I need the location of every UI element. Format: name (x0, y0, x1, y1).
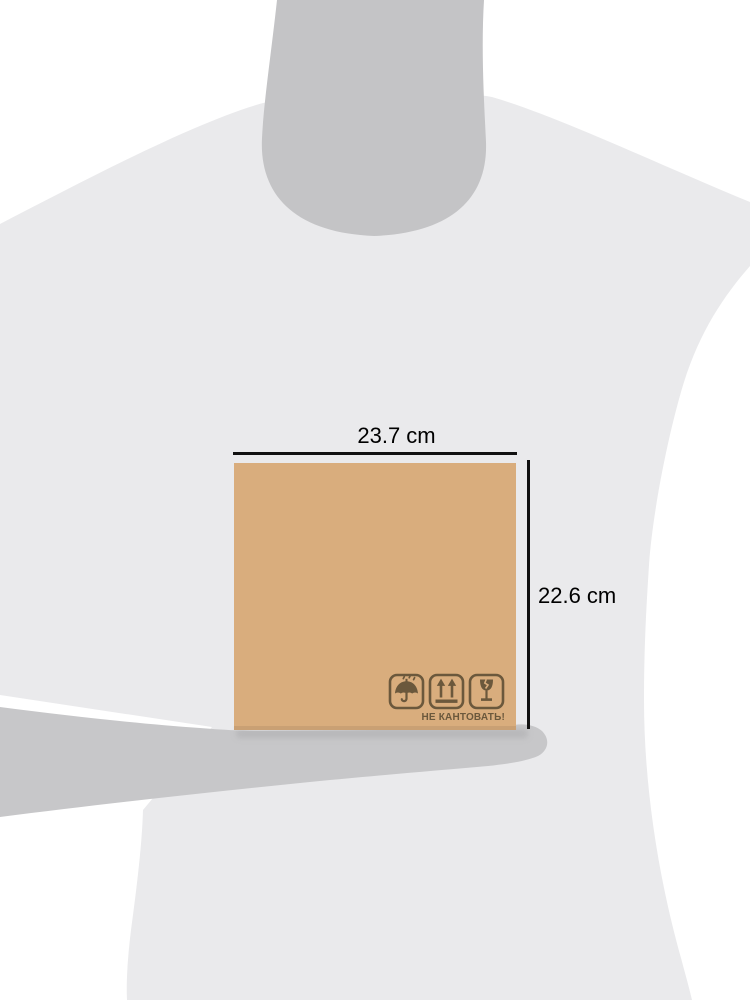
head-silhouette (262, 0, 486, 236)
fragile-icon (468, 673, 505, 710)
cardboard-box: НЕ КАНТОВАТЬ! (234, 463, 516, 730)
height-label: 22.6 cm (538, 584, 616, 608)
handling-icons-row (388, 673, 505, 710)
height-dimension-line (527, 460, 530, 729)
width-dimension-line (233, 452, 517, 455)
keep-dry-icon (388, 673, 425, 710)
width-label: 23.7 cm (255, 424, 538, 448)
size-reference-scene: НЕ КАНТОВАТЬ! 23.7 cm 22.6 cm (0, 0, 750, 1000)
handling-marks: НЕ КАНТОВАТЬ! (388, 673, 505, 723)
box-shadow (236, 729, 528, 738)
this-way-up-icon (428, 673, 465, 710)
handling-label: НЕ КАНТОВАТЬ! (421, 713, 505, 723)
